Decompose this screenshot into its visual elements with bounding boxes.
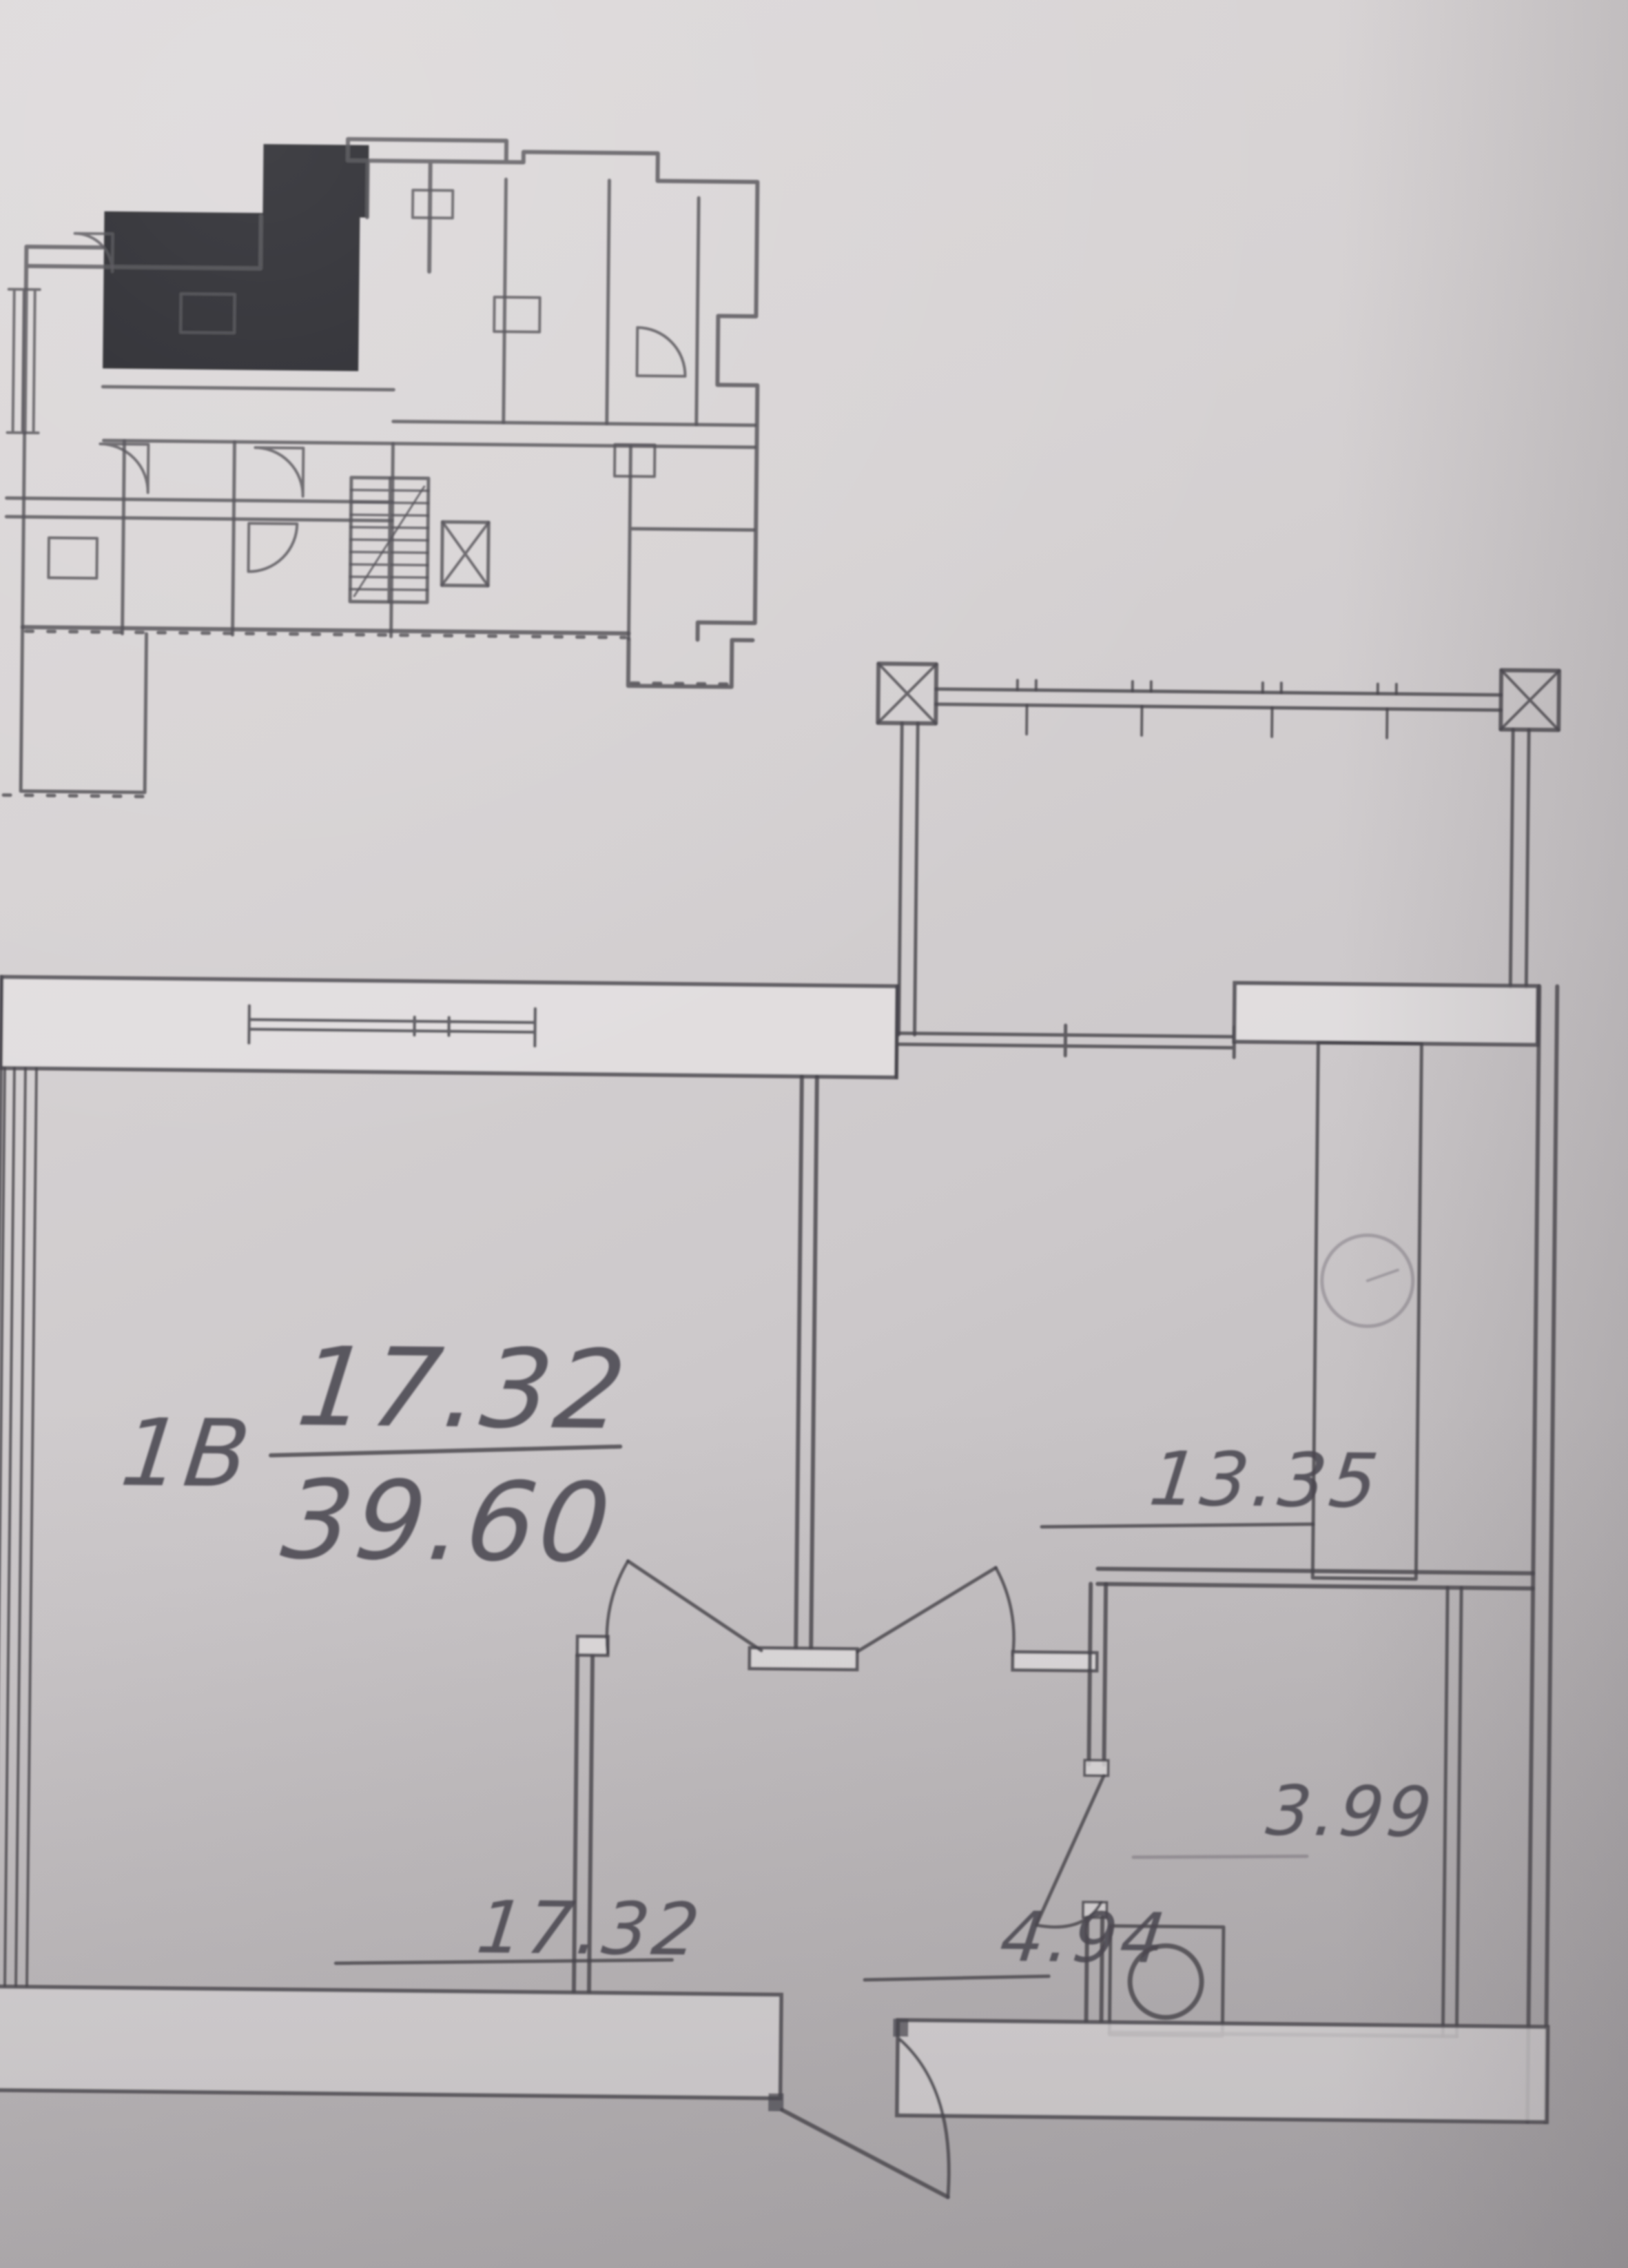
entrance-jamb-right <box>893 2019 908 2036</box>
wall-west-glazing <box>0 1068 37 1987</box>
wall-hallway-bath-stub <box>1013 1652 1097 1671</box>
overview-elevator <box>442 522 488 586</box>
unit-type-label: 1В <box>116 1398 258 1508</box>
overview-stairs <box>350 478 429 602</box>
hallway-area-label: 4.94 <box>996 1897 1173 1979</box>
floorplan-drawing: 1В 17.32 39.60 13.35 17.32 4.94 3.99 <box>0 0 1628 2268</box>
kitchen-area-label: 13.35 <box>1145 1435 1385 1524</box>
door-living <box>607 1561 763 1655</box>
window-balcony-door <box>896 986 1235 1081</box>
wall-north-kitchen <box>1234 983 1538 1045</box>
partition-living-kitchen <box>796 1076 817 1648</box>
overview-bottom-wall <box>22 627 753 687</box>
wall-south-left <box>0 1987 781 2098</box>
balcony-rail-right <box>1510 730 1529 988</box>
wall-east <box>1527 986 1557 2122</box>
bathroom-area-label: 3.99 <box>1263 1770 1439 1852</box>
floorplan-photo: 1В 17.32 39.60 13.35 17.32 4.94 3.99 <box>0 0 1628 2268</box>
door-kitchen <box>857 1566 1015 1655</box>
partition-t-cap <box>750 1648 857 1670</box>
overview-window-ticks-left <box>3 795 145 797</box>
sink-tap-faint <box>1368 1269 1398 1280</box>
total-area-numerator: 17.32 <box>291 1325 635 1454</box>
balcony-rail-top <box>936 689 1501 711</box>
highlighted-unit <box>103 143 369 371</box>
overview-lower-left-wing <box>21 433 148 793</box>
overview-left-windows <box>8 289 40 433</box>
apartment-plan: 1В 17.32 39.60 13.35 17.32 4.94 3.99 <box>0 655 1562 2204</box>
overview-window-ticks-bottom <box>25 631 729 684</box>
total-area-denominator: 39.60 <box>276 1457 619 1586</box>
overview-plan <box>3 136 760 803</box>
hallway-left-jamb <box>577 1636 608 1655</box>
balcony-rail-left <box>899 723 918 1034</box>
wall-south-right <box>897 2020 1547 2122</box>
